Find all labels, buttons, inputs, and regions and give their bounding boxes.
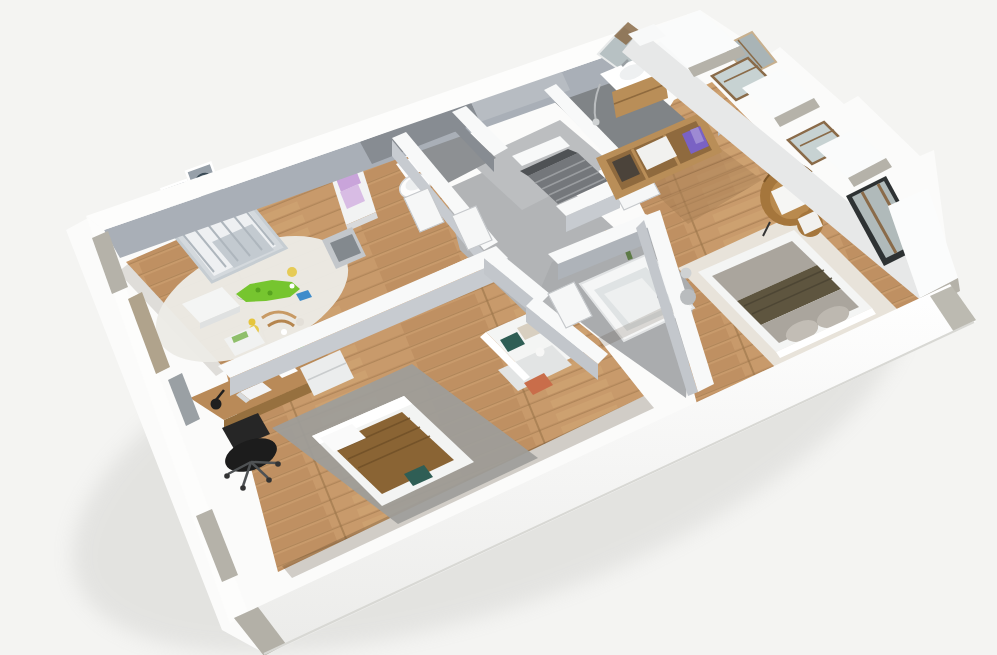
nightstand	[680, 289, 696, 305]
floor-plan-render	[0, 0, 997, 655]
desk-lamp	[211, 399, 222, 410]
floor-plan-svg	[0, 0, 997, 655]
